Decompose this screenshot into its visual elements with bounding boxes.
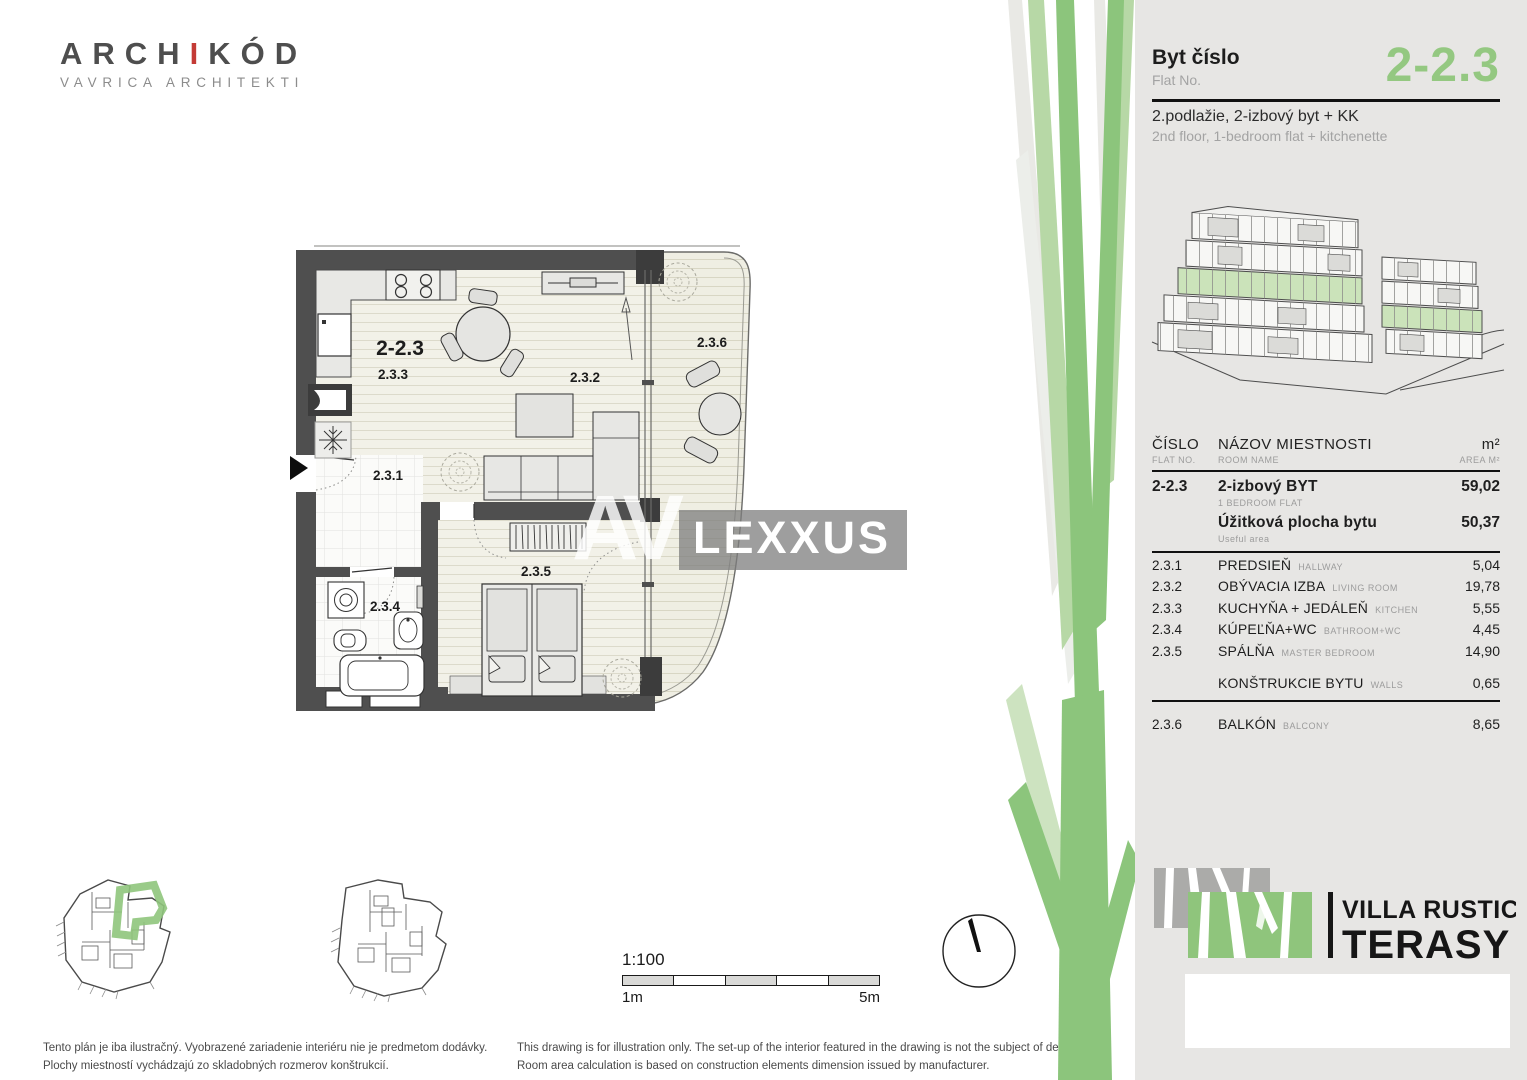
building-render [1148, 182, 1516, 417]
balcony-table [699, 393, 741, 435]
table-row: 2.3.4 KÚPEĽŇA+WCBATHROOM+WC 4,45 [1152, 621, 1500, 639]
row-name: KONŠTRUKCIE BYTUWALLS [1218, 675, 1428, 693]
col-area-en: AREA M² [1428, 455, 1500, 465]
row-name: OBÝVACIA IZBALIVING ROOM [1218, 578, 1428, 596]
row-area: 19,78 [1428, 578, 1500, 594]
row-number: 2.3.6 [1152, 717, 1218, 732]
plan-flat-number: 2-2.3 [376, 337, 424, 360]
flat-number: 2-2.3 [1152, 38, 1500, 93]
col-name-en: ROOM NAME [1218, 455, 1428, 465]
toilet [334, 630, 366, 651]
row-name: Úžitková plocha bytuUseful area [1218, 514, 1428, 544]
stove [386, 270, 440, 300]
key-plan-highlighted [52, 872, 192, 1017]
archikod-accent-letter: I [190, 36, 209, 71]
sofa [484, 456, 597, 500]
archikod-logo: ARCHIKÓD VAVRICA ARCHITEKTI [60, 36, 307, 90]
table-row: KONŠTRUKCIE BYTUWALLS 0,65 [1152, 675, 1500, 702]
scale-bar [622, 975, 880, 986]
building-floors [1158, 203, 1482, 369]
row-area: 5,55 [1428, 600, 1500, 616]
label-hallway: 2.3.1 [373, 468, 404, 483]
row-name: PREDSIEŇHALLWAY [1218, 557, 1428, 575]
row-area: 0,65 [1428, 675, 1500, 691]
scale-to: 5m [859, 989, 880, 1006]
row-number: 2.3.2 [1152, 579, 1218, 594]
scale-ratio: 1:100 [622, 950, 880, 970]
area-table-header: ČÍSLO FLAT NO. NÁZOV MIESTNOSTI ROOM NAM… [1152, 436, 1500, 472]
logo-green-block [1188, 892, 1312, 958]
mirror-shelf [417, 586, 423, 608]
floor-plan-drawing: 2-2.3 2.3.3 2.3.2 2.3.1 2.3.4 2.3.5 2.3.… [288, 242, 770, 740]
compass-needle-icon [968, 918, 981, 952]
row-number: 2.3.5 [1152, 644, 1218, 659]
archikod-post: KÓD [208, 36, 307, 71]
row-name: SPÁLŇAMASTER BEDROOM [1218, 643, 1428, 661]
key-plan-plain [326, 872, 454, 1017]
sink [394, 612, 423, 649]
row-area: 59,02 [1428, 478, 1500, 496]
archikod-subline: VAVRICA ARCHITEKTI [60, 75, 307, 90]
archikod-wordmark: ARCHIKÓD [60, 36, 307, 72]
header-rule [1152, 99, 1500, 102]
table-row: 2.3.3 KUCHYŇA + JEDÁLEŇKITCHEN 5,55 [1152, 600, 1500, 618]
chaise [593, 412, 639, 500]
disclaimer-sk-line2: Plochy miestností vychádzajú zo skladobn… [43, 1058, 487, 1076]
coffee-table [516, 394, 573, 437]
row-area: 8,65 [1428, 716, 1500, 732]
row-area: 5,04 [1428, 557, 1500, 573]
col-area-sk: m² [1428, 436, 1500, 453]
col-number-en: FLAT NO. [1152, 455, 1218, 465]
tree-graphic [1002, 0, 1140, 1080]
label-bedroom: 2.3.5 [521, 564, 552, 579]
row-area: 50,37 [1428, 514, 1500, 532]
table-row: 2-2.3 2-izbový BYT1 BEDROOM FLAT 59,02 [1152, 478, 1500, 508]
label-balcony: 2.3.6 [697, 335, 728, 350]
balcony-area [646, 252, 750, 704]
villa-rustica-text: VILLA RUSTICA [1342, 896, 1516, 924]
table-row: 2.3.6 BALKÓNBALCONY 8,65 [1152, 716, 1500, 734]
flat-subtitle-en: 2nd floor, 1-bedroom flat + kitchenette [1152, 128, 1387, 144]
floor-plan: 2-2.3 2.3.3 2.3.2 2.3.1 2.3.4 2.3.5 2.3.… [288, 242, 770, 740]
row-number: 2.3.1 [1152, 558, 1218, 573]
row-number: 2.3.4 [1152, 622, 1218, 637]
logo-divider-bar [1328, 892, 1333, 958]
washing-machine [328, 582, 364, 618]
table-row: Úžitková plocha bytuUseful area 50,37 [1152, 514, 1500, 553]
dining-table [456, 307, 510, 361]
table-row: 2.3.5 SPÁLŇAMASTER BEDROOM 14,90 [1152, 643, 1500, 661]
label-living: 2.3.2 [570, 370, 600, 385]
flat-subtitle-sk: 2.podlažie, 2-izbový byt + KK [1152, 108, 1359, 126]
archikod-pre: ARCH [60, 36, 190, 71]
row-name: KUCHYŇA + JEDÁLEŇKITCHEN [1218, 600, 1428, 618]
disclaimer-sk: Tento plán je iba ilustračný. Vyobrazené… [43, 1040, 487, 1076]
row-area: 14,90 [1428, 643, 1500, 659]
row-name: KÚPEĽŇA+WCBATHROOM+WC [1218, 621, 1428, 639]
table-row: 2.3.1 PREDSIEŇHALLWAY 5,04 [1152, 557, 1500, 575]
disclaimer-sk-line1: Tento plán je iba ilustračný. Vyobrazené… [43, 1040, 487, 1058]
wardrobe [510, 523, 586, 551]
terasy-text: TERASY [1342, 923, 1510, 967]
row-name: 2-izbový BYT1 BEDROOM FLAT [1218, 478, 1428, 508]
area-table: ČÍSLO FLAT NO. NÁZOV MIESTNOSTI ROOM NAM… [1152, 436, 1500, 734]
villa-rustica-logo: VILLA RUSTICA TERASY [1152, 866, 1516, 976]
row-name: BALKÓNBALCONY [1218, 716, 1428, 734]
hallway-floor [313, 455, 423, 569]
label-kitchen: 2.3.3 [378, 367, 409, 382]
scale-bar-block: 1:100 1m 5m [622, 950, 880, 1006]
col-name-sk: NÁZOV MIESTNOSTI [1218, 436, 1428, 453]
row-number: 2.3.3 [1152, 601, 1218, 616]
area-table-body: 2-2.3 2-izbový BYT1 BEDROOM FLAT 59,02 Ú… [1152, 478, 1500, 734]
label-bathroom: 2.3.4 [370, 599, 401, 614]
row-area: 4,45 [1428, 621, 1500, 637]
row-number: 2-2.3 [1152, 478, 1218, 496]
scale-from: 1m [622, 989, 643, 1006]
signature-box [1185, 974, 1510, 1048]
table-row: 2.3.2 OBÝVACIA IZBALIVING ROOM 19,78 [1152, 578, 1500, 596]
page: ARCHIKÓD VAVRICA ARCHITEKTI [0, 0, 1527, 1080]
col-number-sk: ČÍSLO [1152, 436, 1218, 453]
